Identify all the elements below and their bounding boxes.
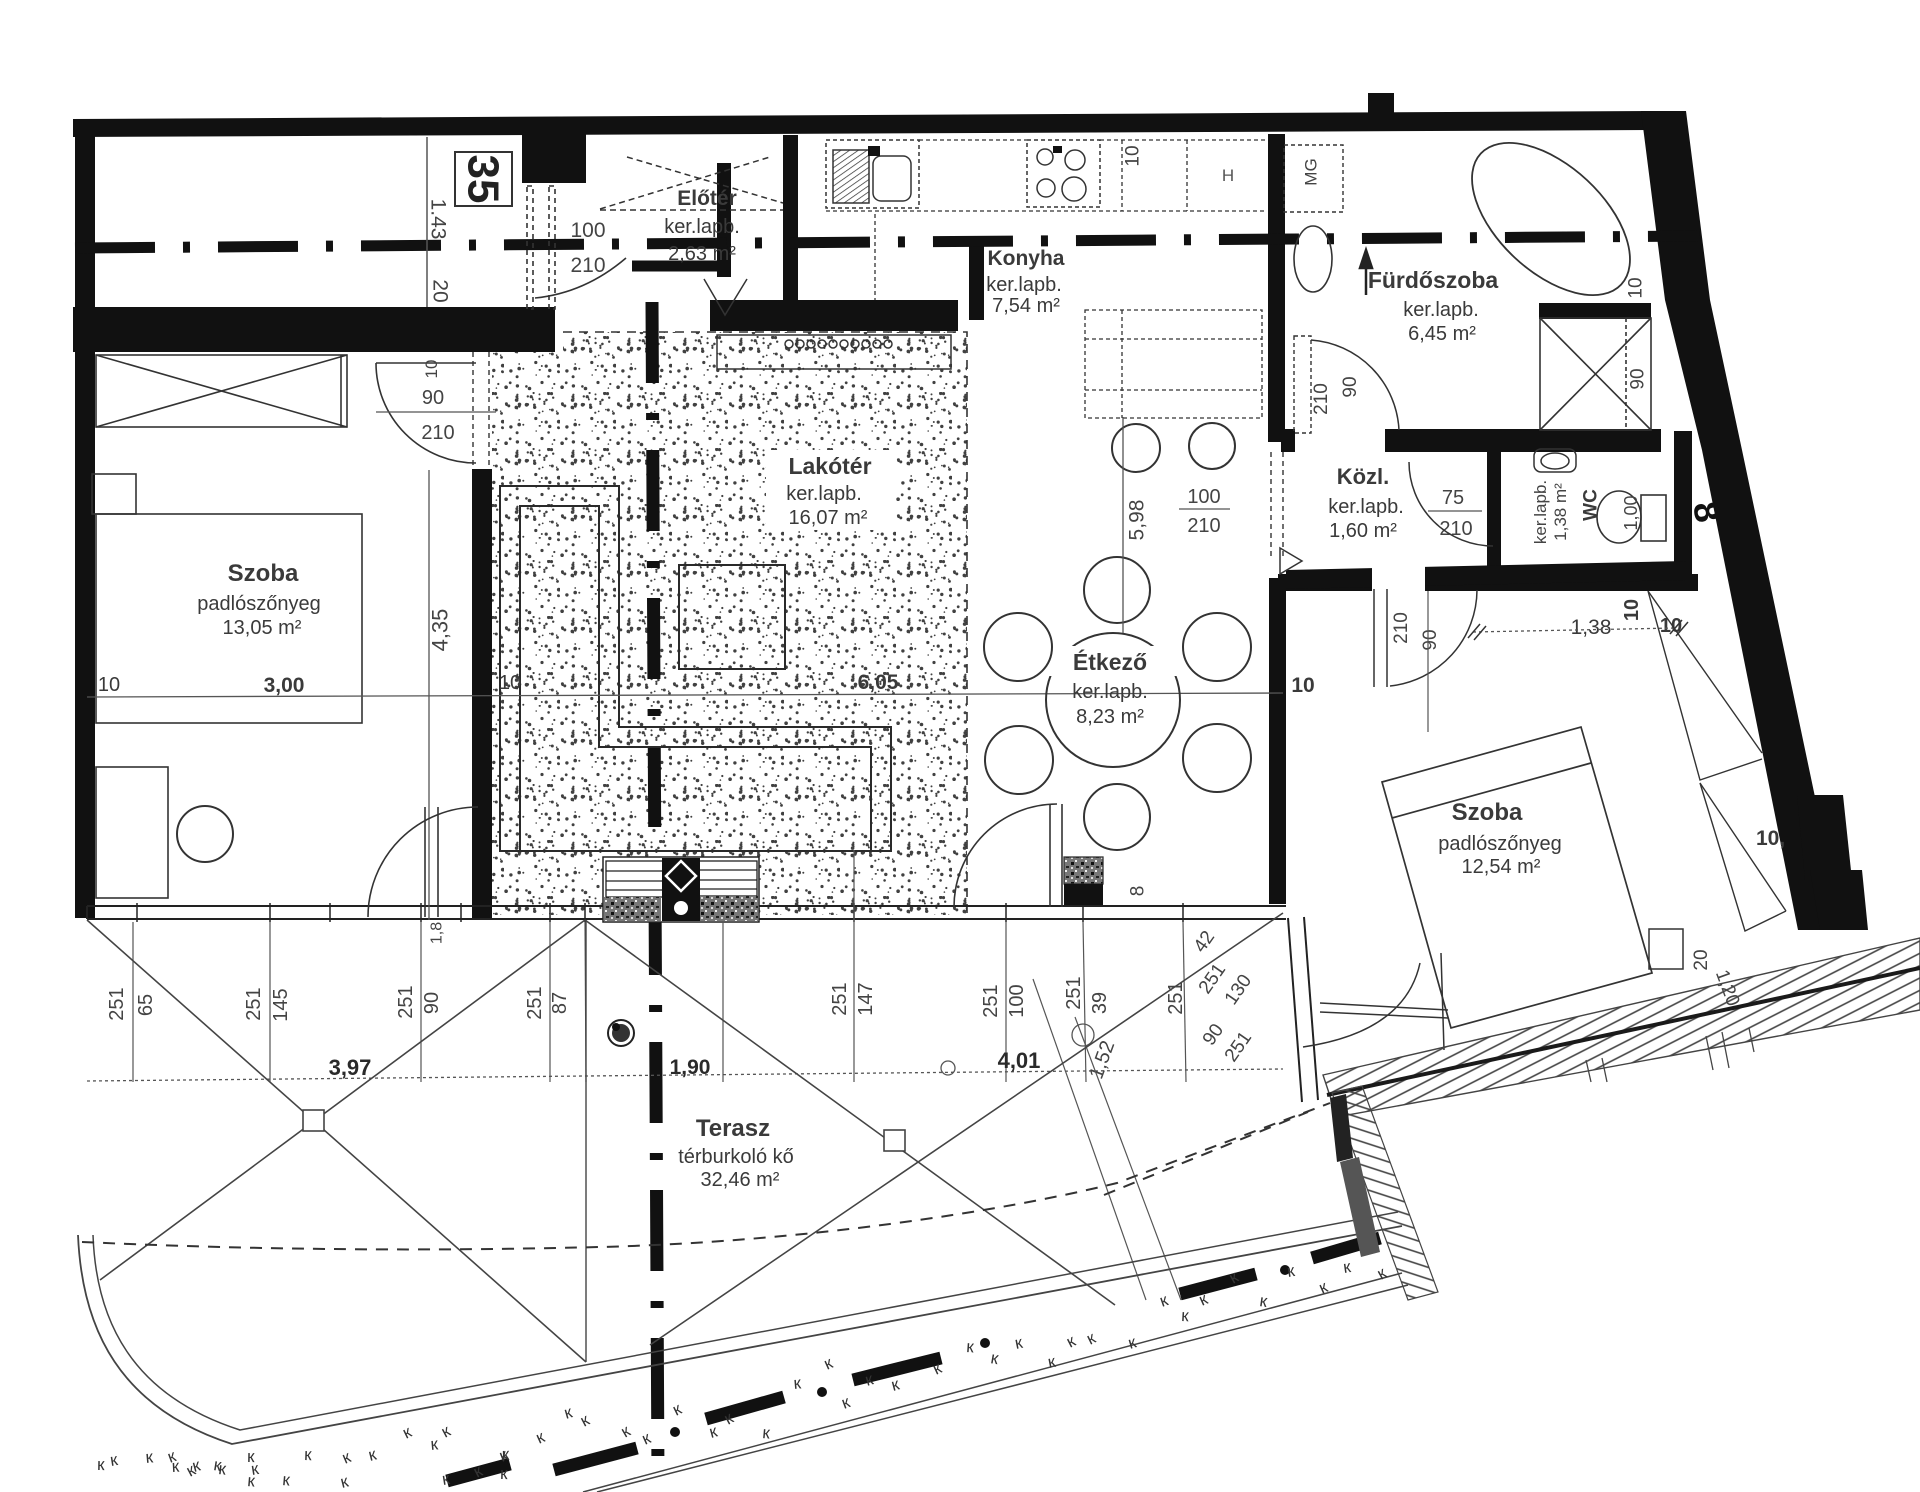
- svg-text:145: 145: [270, 988, 292, 1021]
- svg-text:1,38: 1,38: [1571, 616, 1612, 639]
- svg-text:20: 20: [429, 279, 452, 302]
- svg-text:к: к: [501, 1445, 510, 1464]
- svg-text:1,90: 1,90: [670, 1056, 711, 1079]
- svg-text:210: 210: [570, 254, 605, 277]
- svg-text:65: 65: [135, 994, 157, 1016]
- svg-text:10: 10: [422, 360, 441, 379]
- svg-text:7,54 m²: 7,54 m²: [992, 295, 1060, 317]
- svg-text:90: 90: [1340, 376, 1361, 397]
- svg-text:251: 251: [829, 982, 851, 1015]
- svg-text:90: 90: [1420, 629, 1441, 650]
- svg-text:90: 90: [422, 387, 444, 409]
- svg-text:10: 10: [98, 674, 120, 696]
- svg-text:3,00: 3,00: [264, 674, 305, 697]
- svg-text:10: 10: [1123, 145, 1144, 166]
- svg-text:1,00: 1,00: [1621, 495, 1641, 530]
- svg-text:к: к: [97, 1455, 105, 1474]
- svg-text:Terasz: Terasz: [696, 1115, 770, 1142]
- svg-text:padlószőnyeg: padlószőnyeg: [197, 593, 320, 615]
- svg-text:251: 251: [524, 986, 546, 1019]
- svg-text:251: 251: [395, 985, 417, 1018]
- svg-text:ker.lapb.: ker.lapb.: [664, 216, 740, 238]
- svg-text:1,8: 1,8: [429, 922, 446, 944]
- svg-text:100: 100: [1187, 486, 1220, 508]
- svg-text:87: 87: [549, 992, 571, 1014]
- svg-text:Étkező: Étkező: [1073, 648, 1147, 675]
- svg-text:90: 90: [421, 992, 443, 1014]
- svg-text:térburkoló kő: térburkoló kő: [678, 1146, 794, 1168]
- svg-text:ker.lapb.: ker.lapb.: [1531, 480, 1550, 544]
- svg-text:8: 8: [1128, 886, 1149, 897]
- svg-text:251: 251: [106, 987, 128, 1020]
- svg-text:20: 20: [1691, 949, 1712, 970]
- svg-text:1,60 m²: 1,60 m²: [1329, 520, 1397, 542]
- svg-text:H: H: [1222, 166, 1234, 185]
- svg-text:ker.lapb.: ker.lapb.: [1403, 299, 1479, 321]
- svg-text:147: 147: [855, 982, 877, 1015]
- svg-text:100: 100: [570, 219, 605, 242]
- svg-text:210: 210: [1391, 612, 1412, 644]
- svg-text:5,98: 5,98: [1126, 500, 1149, 541]
- svg-text:251: 251: [243, 987, 265, 1020]
- svg-text:35: 35: [459, 155, 508, 204]
- svg-text:6,45 m²: 6,45 m²: [1408, 323, 1476, 345]
- svg-text:Konyha: Konyha: [987, 247, 1064, 270]
- svg-text:10: 10: [499, 672, 521, 694]
- svg-text:Közl.: Közl.: [1337, 464, 1390, 489]
- svg-text:251: 251: [1063, 976, 1085, 1009]
- svg-text:ker.lapb.: ker.lapb.: [986, 274, 1062, 296]
- svg-text:210: 210: [421, 422, 454, 444]
- svg-text:1,38 m²: 1,38 m²: [1551, 483, 1570, 541]
- svg-text:4,35: 4,35: [428, 609, 453, 652]
- svg-text:12,54 m²: 12,54 m²: [1462, 856, 1541, 878]
- svg-text:16,07 m²: 16,07 m²: [789, 507, 868, 529]
- svg-text:10,: 10,: [1756, 827, 1785, 850]
- svg-text:WC: WC: [1581, 489, 1602, 521]
- svg-text:39: 39: [1089, 992, 1111, 1014]
- svg-text:Fürdőszoba: Fürdőszoba: [1368, 267, 1499, 293]
- svg-text:Lakótér: Lakótér: [788, 453, 871, 479]
- svg-text:4,01: 4,01: [998, 1048, 1041, 1073]
- svg-text:ker.lapb.: ker.lapb.: [1072, 681, 1148, 703]
- svg-text:3,97: 3,97: [329, 1055, 372, 1080]
- svg-text:padlószőnyeg: padlószőnyeg: [1438, 833, 1561, 855]
- svg-text:10: 10: [1291, 674, 1314, 697]
- svg-text:ker.lapb.: ker.lapb.: [1328, 496, 1404, 518]
- svg-text:MG: MG: [1302, 158, 1321, 185]
- svg-text:251: 251: [980, 984, 1002, 1017]
- svg-text:8,23 m²: 8,23 m²: [1076, 706, 1144, 728]
- svg-text:6,05: 6,05: [858, 671, 899, 694]
- svg-text:к: к: [304, 1445, 313, 1464]
- svg-text:Szoba: Szoba: [1452, 799, 1523, 826]
- svg-text:90: 90: [1628, 368, 1649, 389]
- svg-text:2,63 m²: 2,63 m²: [668, 243, 736, 265]
- svg-text:32,46 m²: 32,46 m²: [701, 1169, 780, 1191]
- svg-text:10: 10: [1621, 599, 1643, 621]
- svg-text:Szoba: Szoba: [228, 560, 299, 587]
- svg-text:13,05 m²: 13,05 m²: [223, 617, 302, 639]
- svg-text:75: 75: [1442, 487, 1464, 509]
- svg-text:210: 210: [1187, 515, 1220, 537]
- svg-text:100: 100: [1006, 984, 1028, 1017]
- svg-text:10: 10: [1626, 277, 1647, 298]
- svg-text:ker.lapb.: ker.lapb.: [786, 483, 862, 505]
- svg-text:к: к: [500, 1464, 508, 1483]
- svg-text:1.43: 1.43: [427, 199, 450, 240]
- svg-text:Előtér: Előtér: [677, 187, 737, 210]
- svg-text:210: 210: [1311, 383, 1332, 415]
